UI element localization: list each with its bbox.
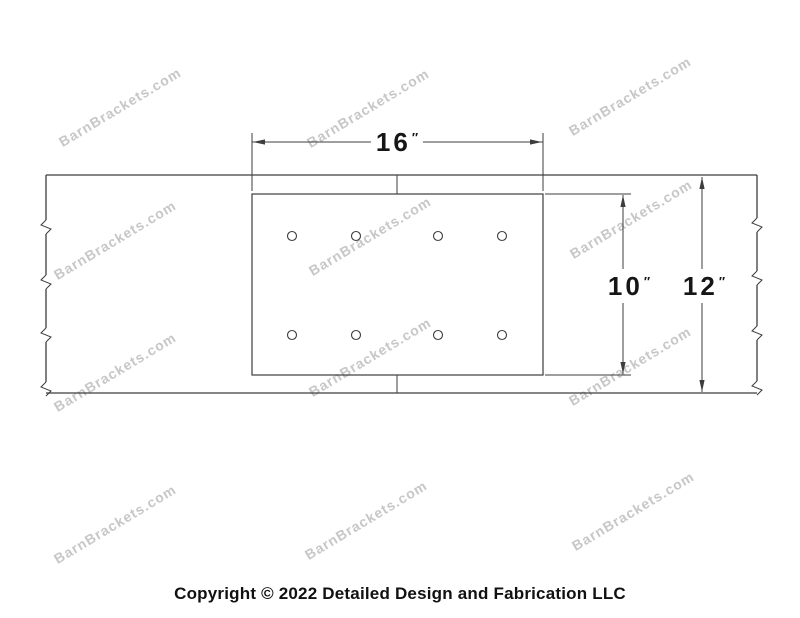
copyright-text: Copyright © 2022 Detailed Design and Fab… [0, 584, 800, 604]
dimension-arrowhead [620, 362, 625, 374]
bolt-hole [352, 232, 361, 241]
beam-break-symbol [41, 220, 51, 234]
dimension-arrowhead [620, 195, 625, 207]
dimension-arrowhead [253, 139, 265, 144]
dimension-width-value: 16 [376, 127, 411, 157]
inch-mark: ″ [644, 275, 650, 288]
beam-break-symbol [752, 271, 762, 285]
inch-mark: ″ [719, 275, 725, 288]
bolt-hole [434, 331, 443, 340]
bolt-hole [434, 232, 443, 241]
dimension-width-label: 16″ [371, 125, 423, 159]
bolt-hole [288, 331, 297, 340]
bolt-hole [498, 331, 507, 340]
dimension-arrowhead [530, 139, 542, 144]
dimension-beam-height-value: 12 [683, 271, 718, 301]
beam-break-symbol [752, 218, 762, 232]
beam-break-symbol [752, 326, 762, 340]
bolt-hole [288, 232, 297, 241]
beam-break-symbol [41, 328, 51, 342]
bolt-hole [498, 232, 507, 241]
inch-mark: ″ [412, 131, 418, 144]
dimension-arrowhead [699, 380, 704, 392]
beam-break-symbol [41, 382, 51, 396]
beam-break-symbol [41, 275, 51, 289]
bracket-drawing-page: BarnBrackets.comBarnBrackets.comBarnBrac… [0, 0, 800, 618]
dimension-arrowhead [699, 177, 704, 189]
beam-bracket-technical-drawing [0, 0, 800, 618]
dimension-plate-height-label: 10″ [603, 269, 655, 303]
dimension-beam-height-label: 12″ [678, 269, 730, 303]
bolt-hole [352, 331, 361, 340]
dimension-plate-height-value: 10 [608, 271, 643, 301]
bracket-plate [252, 194, 543, 375]
